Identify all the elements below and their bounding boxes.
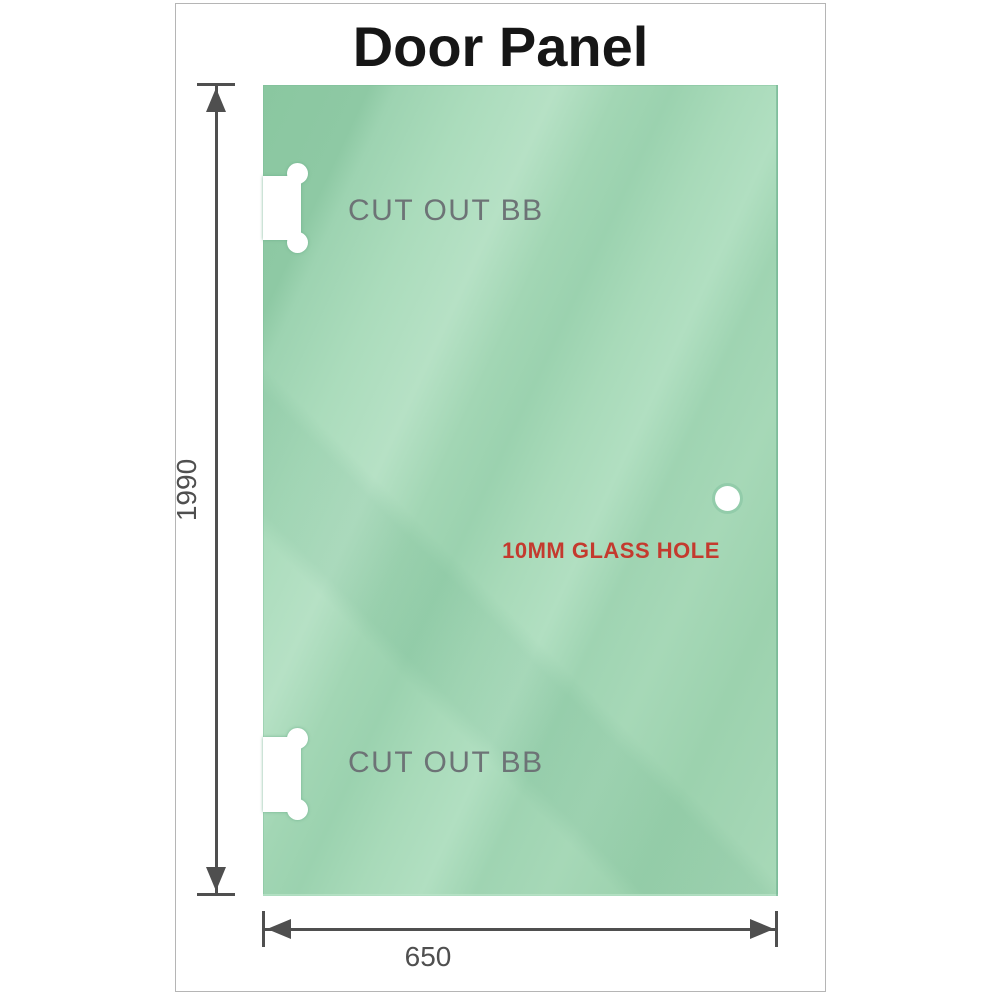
cutout-lobe (287, 163, 308, 184)
arrow-right-icon (750, 919, 774, 939)
hinge-cutout-bottom (263, 728, 313, 820)
arrow-up-icon (206, 88, 226, 112)
cutout-label-top: CUT OUT BB (348, 194, 544, 228)
width-dimension-cap-right (775, 911, 778, 947)
glass-hole-label: 10MM GLASS HOLE (502, 538, 720, 564)
width-dimension-value: 650 (405, 941, 452, 973)
height-dimension-cap-top (197, 83, 235, 86)
height-dimension-value: 1990 (171, 459, 203, 521)
cutout-body (263, 176, 301, 240)
cutout-label-bottom: CUT OUT BB (348, 746, 544, 780)
glass-hole (715, 486, 740, 511)
height-dimension-cap-bottom (197, 893, 235, 896)
cutout-lobe (287, 728, 308, 749)
cutout-lobe (287, 232, 308, 253)
cutout-lobe (287, 799, 308, 820)
page-title: Door Panel (175, 14, 826, 79)
arrow-left-icon (267, 919, 291, 939)
arrow-down-icon (206, 867, 226, 891)
hinge-cutout-top (263, 163, 313, 253)
width-dimension-line (265, 928, 776, 931)
height-dimension-line (215, 86, 218, 894)
width-dimension-cap-left (262, 911, 265, 947)
door-panel-diagram: Door Panel CUT OUT BB CUT OUT BB 10MM GL… (0, 0, 1000, 1000)
